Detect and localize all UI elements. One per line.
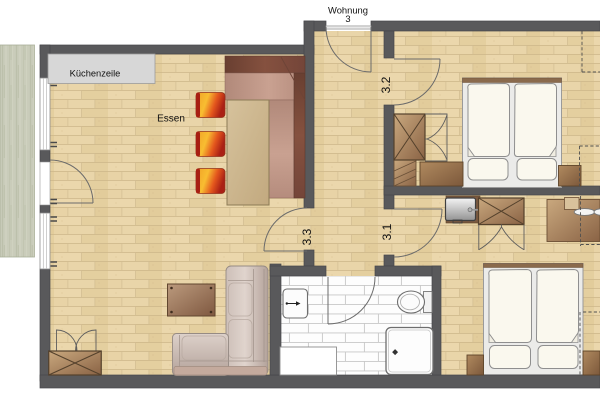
svg-text:3.2: 3.2: [379, 76, 393, 93]
svg-text:3.1: 3.1: [380, 223, 394, 240]
svg-text:Essen: Essen: [157, 114, 185, 125]
svg-text:3: 3: [345, 13, 350, 24]
svg-text:Küchenzeile: Küchenzeile: [70, 69, 121, 79]
svg-text:3.3: 3.3: [300, 228, 314, 245]
